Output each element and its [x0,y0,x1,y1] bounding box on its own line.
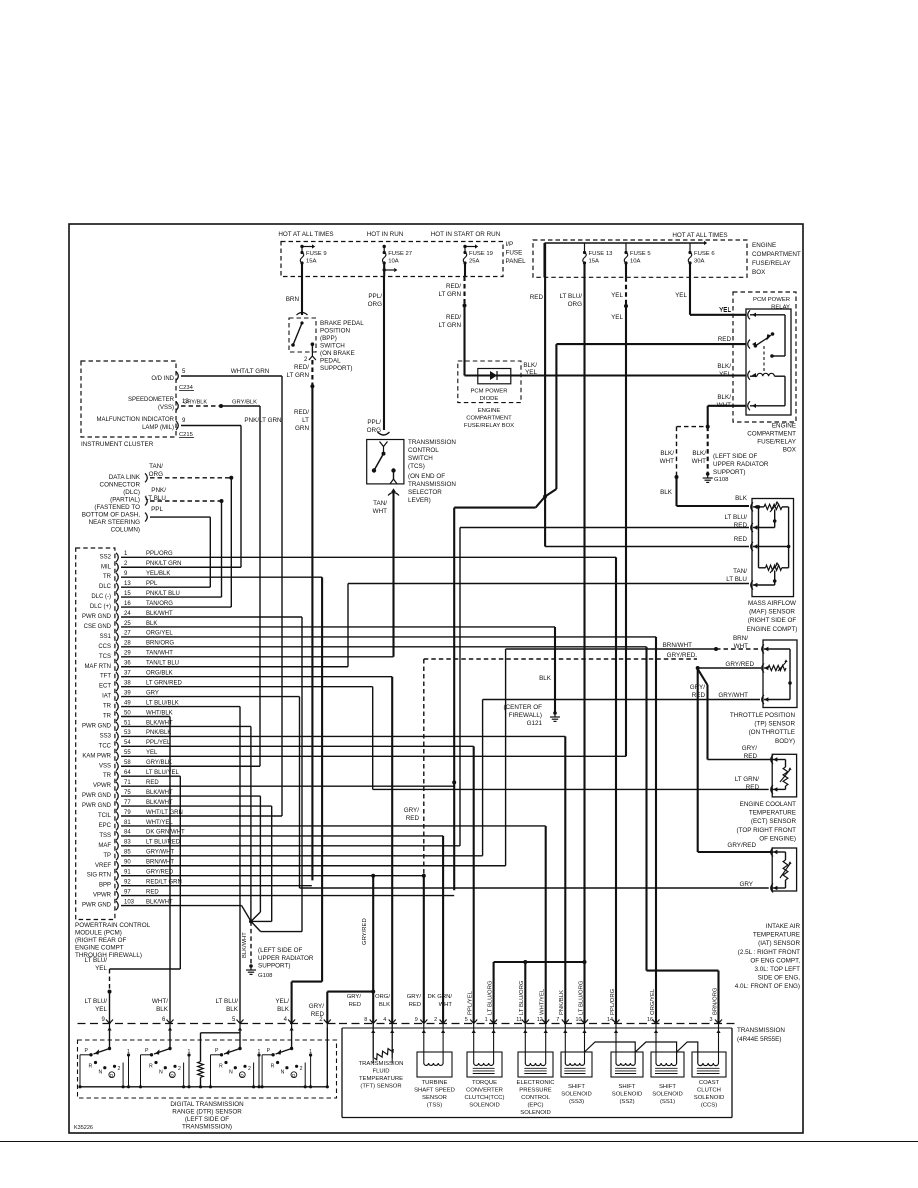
svg-text:LT BLU/ORG: LT BLU/ORG [519,980,525,1015]
svg-text:CONVERTER: CONVERTER [466,1088,503,1094]
svg-text:LT BLU/YEL: LT BLU/YEL [146,770,179,776]
svg-text:TURBINE: TURBINE [422,1080,448,1086]
svg-text:BLK: BLK [539,675,552,682]
svg-text:36: 36 [124,661,131,667]
svg-text:ELECTRONIC: ELECTRONIC [517,1080,556,1086]
svg-text:TEMPERATURE: TEMPERATURE [749,810,796,817]
svg-text:THROTTLE POSITION: THROTTLE POSITION [730,712,796,719]
svg-text:LT BLU/: LT BLU/ [559,293,582,300]
svg-text:RED: RED [734,536,748,543]
svg-text:FUSE 19: FUSE 19 [469,251,493,257]
svg-text:PCM POWER: PCM POWER [471,389,508,395]
svg-text:PANEL: PANEL [506,258,527,265]
svg-text:38: 38 [124,680,131,686]
svg-text:85: 85 [124,850,131,856]
svg-text:RED: RED [311,1011,325,1018]
svg-text:15: 15 [124,591,131,597]
svg-text:30A: 30A [694,259,705,265]
svg-text:RED: RED [530,294,544,301]
svg-text:(TFT) SENSOR: (TFT) SENSOR [360,1084,401,1090]
svg-text:VPWR: VPWR [93,893,112,899]
svg-text:R: R [271,1064,275,1070]
svg-text:(TP) SENSOR: (TP) SENSOR [754,721,795,728]
svg-text:GRY/BLK: GRY/BLK [146,760,172,766]
svg-text:FUSE 9: FUSE 9 [306,251,327,257]
svg-text:39: 39 [124,690,131,696]
svg-text:DATA LINK: DATA LINK [109,474,141,481]
svg-text:GRY/RED: GRY/RED [725,661,754,668]
svg-text:(ON END OF: (ON END OF [408,473,445,480]
svg-text:(LEFT SIDE OF: (LEFT SIDE OF [185,1116,229,1123]
svg-text:RED/: RED/ [446,314,461,321]
svg-text:BRN/ORG: BRN/ORG [713,987,719,1015]
svg-text:10A: 10A [388,259,399,265]
svg-text:1: 1 [485,1017,488,1023]
svg-text:VSS: VSS [99,763,111,769]
svg-text:(SS1): (SS1) [660,1099,675,1105]
svg-text:RED: RED [146,780,159,786]
svg-text:BLK/WHT: BLK/WHT [146,800,173,806]
svg-text:POSITION: POSITION [320,328,351,335]
svg-text:VPWR: VPWR [93,783,112,789]
svg-text:SHIFT: SHIFT [568,1084,585,1090]
svg-text:PPL: PPL [146,581,158,587]
svg-text:YEL: YEL [525,369,537,376]
svg-text:SOLENOID: SOLENOID [694,1095,724,1101]
svg-text:GRY/: GRY/ [309,1003,325,1010]
svg-text:TORQUE: TORQUE [472,1080,497,1086]
svg-text:SOLENOID: SOLENOID [469,1103,499,1109]
svg-text:INTAKE AIR: INTAKE AIR [766,923,801,930]
svg-text:WHT: WHT [439,1002,453,1008]
svg-text:SS2: SS2 [100,554,112,560]
svg-text:BLK/: BLK/ [717,394,731,401]
svg-text:SOLENOID: SOLENOID [561,1092,591,1098]
svg-text:CONNECTOR: CONNECTOR [100,482,141,489]
svg-text:TR: TR [103,704,112,710]
svg-text:SWITCH: SWITCH [320,343,345,350]
svg-text:TCS: TCS [99,654,111,660]
svg-text:YEL: YEL [611,314,623,321]
svg-text:RED: RED [409,1002,421,1008]
svg-text:ORG/YEL: ORG/YEL [146,631,173,637]
svg-text:OF ENG COMPT,: OF ENG COMPT, [750,957,800,964]
svg-text:58: 58 [124,760,131,766]
svg-text:BRAKE PEDAL: BRAKE PEDAL [320,320,364,327]
svg-text:YEL: YEL [675,292,687,299]
svg-text:FUSE 6: FUSE 6 [694,251,715,257]
svg-text:ENGINE COOLANT: ENGINE COOLANT [740,801,796,808]
svg-text:RED: RED [692,692,706,699]
svg-text:SUPPORT): SUPPORT) [320,365,352,372]
svg-text:SELECTOR: SELECTOR [408,489,442,496]
svg-text:R: R [89,1064,93,1070]
svg-text:LEVER): LEVER) [408,497,431,504]
svg-text:LT BLU/ORG: LT BLU/ORG [578,980,584,1015]
svg-text:RANGE (DTR) SENSOR: RANGE (DTR) SENSOR [172,1109,242,1116]
svg-text:FIREWALL): FIREWALL) [509,712,542,719]
svg-text:(4R44E 5R55E): (4R44E 5R55E) [737,1036,781,1043]
svg-text:(2.5L : RIGHT FRONT: (2.5L : RIGHT FRONT [738,949,800,956]
svg-text:LT BLU/: LT BLU/ [215,998,238,1005]
svg-text:CONTROL: CONTROL [408,447,439,454]
svg-text:TEMPERATURE: TEMPERATURE [753,932,800,939]
svg-text:LT GRN: LT GRN [438,291,461,298]
svg-text:GRY/: GRY/ [404,807,420,814]
svg-text:UPPER RADIATOR: UPPER RADIATOR [258,955,314,962]
svg-text:TR: TR [103,773,112,779]
svg-text:TAN/WHT: TAN/WHT [146,651,173,657]
svg-text:COMPARTMENT: COMPARTMENT [747,431,796,438]
svg-text:RED/LT GRN: RED/LT GRN [146,879,182,885]
svg-text:BLK/: BLK/ [660,450,674,457]
svg-text:81: 81 [124,820,131,826]
svg-text:TAN/ORG: TAN/ORG [146,601,173,607]
svg-text:(IAT) SENSOR: (IAT) SENSOR [758,940,800,947]
svg-text:71: 71 [124,780,131,786]
svg-text:PNK/BLK: PNK/BLK [146,730,171,736]
svg-text:LT GRN/: LT GRN/ [735,776,760,783]
svg-text:GRY/: GRY/ [347,994,362,1000]
svg-text:(CENTER OF: (CENTER OF [504,704,543,711]
svg-text:UPPER RADIATOR: UPPER RADIATOR [713,461,769,468]
svg-text:YEL: YEL [719,371,731,378]
svg-text:HOT AT ALL TIMES: HOT AT ALL TIMES [672,232,727,239]
svg-text:25: 25 [124,621,131,627]
svg-text:LT: LT [302,417,309,424]
svg-text:DIGITAL TRANSMISSION: DIGITAL TRANSMISSION [170,1101,244,1108]
svg-text:PCM POWER: PCM POWER [753,297,790,303]
svg-text:BLK/WHT: BLK/WHT [242,932,248,958]
svg-text:RED/: RED/ [294,364,309,371]
svg-text:I/P: I/P [506,241,514,248]
svg-text:49: 49 [124,700,131,706]
svg-text:SWITCH: SWITCH [408,455,433,462]
svg-text:N: N [281,1070,285,1076]
svg-text:(LEFT SIDE OF: (LEFT SIDE OF [258,947,302,954]
svg-text:92: 92 [124,879,131,885]
svg-text:90: 90 [124,860,131,866]
svg-text:HOT AT ALL TIMES: HOT AT ALL TIMES [278,231,333,238]
svg-text:BOX: BOX [752,269,766,276]
svg-text:RED: RED [718,336,732,343]
svg-text:(MAF) SENSOR: (MAF) SENSOR [749,609,795,616]
svg-text:(TOP RIGHT FRONT: (TOP RIGHT FRONT [737,827,797,834]
svg-text:13: 13 [124,581,131,587]
svg-text:SOLENOID: SOLENOID [612,1092,642,1098]
svg-text:DK GRN/WHT: DK GRN/WHT [146,830,185,836]
svg-text:RED: RED [349,1002,361,1008]
svg-text:PPL/: PPL/ [367,419,381,426]
svg-text:PPL/ORG: PPL/ORG [610,988,616,1015]
svg-text:TRANSMISSION: TRANSMISSION [408,481,456,488]
svg-text:BLK: BLK [156,1006,169,1013]
svg-text:4.0L: FRONT OF ENG): 4.0L: FRONT OF ENG) [735,983,800,990]
svg-text:5: 5 [465,1017,468,1023]
svg-text:BLK: BLK [277,1006,290,1013]
svg-text:(CCS): (CCS) [701,1103,717,1109]
svg-text:MIL: MIL [101,564,112,570]
svg-text:COLUMN): COLUMN) [111,527,140,534]
svg-text:FUSE 27: FUSE 27 [388,251,412,257]
svg-text:GRY/WHT: GRY/WHT [718,692,748,699]
svg-text:MAF RTN: MAF RTN [84,664,111,670]
svg-text:BLK: BLK [735,495,748,502]
svg-text:15A: 15A [306,259,317,265]
svg-text:SOLENOID: SOLENOID [652,1092,682,1098]
svg-text:27: 27 [124,631,131,637]
svg-text:(ON BRAKE: (ON BRAKE [320,350,355,357]
svg-text:WHT/YEL: WHT/YEL [540,988,546,1015]
svg-text:64: 64 [124,770,131,776]
svg-text:(RIGHT REAR OF: (RIGHT REAR OF [75,937,126,944]
svg-text:16: 16 [124,601,131,607]
svg-text:BLK/WHT: BLK/WHT [146,790,173,796]
svg-text:BLK: BLK [226,1006,239,1013]
svg-text:BLK/: BLK/ [692,450,706,457]
svg-text:ENGINE: ENGINE [478,408,501,414]
svg-text:O/D IND: O/D IND [151,376,174,382]
svg-text:PNK/LT GRN: PNK/LT GRN [244,417,282,424]
svg-text:25A: 25A [469,259,480,265]
svg-text:TRANSMISSION): TRANSMISSION) [182,1124,232,1131]
svg-text:ORG: ORG [368,301,382,308]
svg-text:TRANSMISSION: TRANSMISSION [359,1061,404,1067]
svg-text:(LEFT SIDE OF: (LEFT SIDE OF [713,453,757,460]
svg-text:WHT: WHT [660,458,674,465]
svg-text:G108: G108 [258,973,273,979]
svg-text:10: 10 [576,1017,582,1023]
svg-text:TAN/: TAN/ [149,463,163,470]
svg-text:(BPP): (BPP) [320,335,337,342]
svg-text:BLK/WHT: BLK/WHT [146,899,173,905]
svg-text:ORG: ORG [149,471,163,478]
svg-text:53: 53 [124,730,131,736]
svg-text:GRY/: GRY/ [742,745,758,752]
svg-text:PPL/ORG: PPL/ORG [146,551,173,557]
svg-text:79: 79 [124,810,131,816]
svg-text:GRY/: GRY/ [690,684,706,691]
svg-text:2: 2 [118,1066,121,1072]
svg-text:7: 7 [556,1017,559,1023]
svg-text:LT BLU: LT BLU [145,495,166,502]
svg-text:YEL: YEL [611,292,623,299]
svg-text:GRY: GRY [146,690,159,696]
svg-text:28: 28 [124,641,131,647]
svg-text:TEMPERATURE: TEMPERATURE [359,1076,403,1082]
svg-text:MAF: MAF [98,843,111,849]
svg-text:EPC: EPC [99,823,112,829]
svg-text:RED/: RED/ [294,409,309,416]
svg-text:PNK/BLK: PNK/BLK [559,990,565,1015]
svg-text:54: 54 [124,740,131,746]
svg-text:RED/: RED/ [446,283,461,290]
svg-text:BOX: BOX [783,447,797,454]
svg-text:MASS AIRFLOW: MASS AIRFLOW [748,600,796,607]
svg-text:BRN/ORG: BRN/ORG [146,641,174,647]
svg-text:ORG: ORG [568,301,582,308]
svg-text:FUSE: FUSE [506,250,523,257]
svg-text:84: 84 [124,830,131,836]
svg-text:RED: RED [734,522,748,529]
svg-text:BLK/: BLK/ [717,363,731,370]
svg-text:BRN/: BRN/ [733,635,748,642]
svg-text:29: 29 [124,651,131,657]
svg-text:16: 16 [647,1017,653,1023]
svg-text:PNK/LT GRN: PNK/LT GRN [146,561,181,567]
svg-text:DLC: DLC [99,584,112,590]
svg-text:9: 9 [415,1017,418,1023]
svg-text:WHT/LT GRN: WHT/LT GRN [231,368,270,375]
svg-text:RELAY: RELAY [771,305,790,311]
svg-text:DK GRN/: DK GRN/ [427,994,452,1000]
svg-text:TRANSMISSION: TRANSMISSION [737,1027,785,1034]
svg-text:37: 37 [124,671,131,677]
svg-text:G108: G108 [714,477,729,483]
svg-text:FUSE/RELAY: FUSE/RELAY [757,439,797,446]
svg-text:PPL: PPL [151,506,163,513]
svg-text:WHT/BLK: WHT/BLK [146,710,173,716]
svg-text:VREF: VREF [95,863,111,869]
svg-text:51: 51 [124,720,131,726]
svg-text:ORG/: ORG/ [375,994,390,1000]
svg-text:ENGINE COMPT): ENGINE COMPT) [747,626,798,633]
svg-text:4: 4 [383,1017,386,1023]
svg-text:ORG/YEL: ORG/YEL [650,988,656,1015]
svg-text:SUPPORT): SUPPORT) [713,469,745,476]
svg-text:(RIGHT SIDE OF: (RIGHT SIDE OF [748,617,797,624]
svg-text:YEL: YEL [95,965,107,972]
svg-text:SIG RTN: SIG RTN [87,873,111,879]
svg-text:83: 83 [124,840,131,846]
svg-text:YEL/BLK: YEL/BLK [146,571,170,577]
svg-text:K35226: K35226 [74,1125,93,1131]
svg-text:BLK/WHT: BLK/WHT [146,611,173,617]
svg-text:TAN/: TAN/ [733,568,747,575]
svg-text:(TCS): (TCS) [408,463,425,470]
svg-text:CONTROL: CONTROL [521,1095,551,1101]
svg-text:TSS: TSS [99,833,111,839]
svg-text:SS1: SS1 [100,634,112,640]
svg-text:LT BLU/: LT BLU/ [84,957,107,964]
svg-text:CCS: CCS [98,644,111,650]
svg-text:TR: TR [103,714,112,720]
svg-text:GRY/RED.: GRY/RED. [667,652,698,659]
svg-text:COMPARTMENT: COMPARTMENT [752,251,801,258]
svg-text:POWERTRAIN CONTROL: POWERTRAIN CONTROL [75,922,151,929]
svg-text:TCC: TCC [99,743,112,749]
svg-text:MALFUNCTION INDICATOR: MALFUNCTION INDICATOR [97,417,175,423]
svg-text:N: N [99,1070,103,1076]
svg-text:BLK/WHT: BLK/WHT [146,720,173,726]
svg-text:KAM PWR: KAM PWR [82,753,111,759]
svg-text:DLC (-): DLC (-) [91,594,111,600]
svg-text:WHT: WHT [692,458,706,465]
svg-text:CSE GND: CSE GND [84,624,112,630]
svg-text:SHIFT: SHIFT [659,1084,676,1090]
svg-text:LT GRN/RED: LT GRN/RED [146,680,182,686]
svg-text:P: P [85,1048,89,1054]
svg-text:TAN/LT BLU: TAN/LT BLU [146,661,179,667]
svg-text:RED: RED [746,784,760,791]
svg-text:R: R [219,1064,223,1070]
svg-text:(ON THROTTLE: (ON THROTTLE [749,729,795,736]
svg-text:PWR GND: PWR GND [82,614,112,620]
svg-text:ENGINE COMPT: ENGINE COMPT [75,945,124,952]
svg-text:FUSE 5: FUSE 5 [630,251,651,257]
svg-text:TP: TP [103,853,111,859]
svg-text:P: P [267,1048,271,1054]
svg-text:PNK/LT BLU: PNK/LT BLU [146,591,180,597]
svg-text:BLK: BLK [660,489,673,496]
svg-text:WHT/: WHT/ [152,998,168,1005]
svg-text:RED: RED [406,815,420,822]
svg-text:10A: 10A [630,259,641,265]
svg-text:GRY: GRY [739,881,753,888]
svg-text:OF ENGINE): OF ENGINE) [759,835,796,842]
svg-text:PRESSURE: PRESSURE [519,1088,551,1094]
svg-text:IAT: IAT [102,694,111,700]
svg-text:G121: G121 [527,720,543,727]
svg-text:LT GRN: LT GRN [286,372,309,379]
svg-text:14: 14 [607,1017,613,1023]
svg-text:(PARTIAL): (PARTIAL) [110,497,140,504]
svg-text:(EPC): (EPC) [527,1103,543,1109]
svg-text:(ECT) SENSOR: (ECT) SENSOR [751,818,797,825]
svg-text:HOT IN RUN: HOT IN RUN [367,231,404,238]
svg-text:COMPARTMENT: COMPARTMENT [466,416,512,422]
svg-text:BLK: BLK [146,621,157,627]
svg-text:P: P [145,1048,149,1054]
svg-text:BLK/: BLK/ [523,362,537,369]
svg-text:LAMP (MIL): LAMP (MIL) [142,425,174,431]
svg-text:TAN/: TAN/ [373,500,387,507]
svg-text:LT BLU/: LT BLU/ [84,998,107,1005]
svg-text:(SS2): (SS2) [619,1099,634,1105]
svg-text:GRN: GRN [295,425,309,432]
svg-text:WHT: WHT [373,508,387,515]
svg-text:ENGINE: ENGINE [752,242,776,249]
svg-text:(DLC): (DLC) [123,489,140,496]
svg-text:COAST: COAST [699,1080,720,1086]
svg-text:SHIFT: SHIFT [618,1084,635,1090]
svg-text:PWR GND: PWR GND [82,803,112,809]
svg-text:12: 12 [537,1017,543,1023]
svg-text:3.0L: TOP LEFT: 3.0L: TOP LEFT [754,966,800,973]
svg-text:CLUTCH(TCC): CLUTCH(TCC) [465,1095,505,1101]
svg-text:75: 75 [124,790,131,796]
svg-text:PPL/YEL: PPL/YEL [146,740,171,746]
svg-text:2: 2 [434,1017,437,1023]
svg-text:GRY/BLK: GRY/BLK [232,400,257,406]
svg-text:BRN/WHT: BRN/WHT [663,642,693,649]
svg-text:RED: RED [744,753,758,760]
svg-text:2: 2 [178,1066,181,1072]
svg-text:YEL: YEL [146,750,158,756]
svg-text:3: 3 [710,1017,713,1023]
svg-text:YEL: YEL [95,1006,107,1013]
svg-text:(VSS): (VSS) [158,405,174,411]
svg-text:TFT: TFT [100,674,111,680]
svg-text:PWR GND: PWR GND [82,793,112,799]
svg-text:FUSE/RELAY BOX: FUSE/RELAY BOX [464,423,514,429]
svg-text:YEL: YEL [719,307,731,314]
svg-text:2: 2 [248,1066,251,1072]
svg-text:P: P [215,1048,219,1054]
svg-text:ORG/BLK: ORG/BLK [146,671,173,677]
svg-text:N: N [159,1070,163,1076]
svg-text:LT GRN: LT GRN [438,322,461,329]
